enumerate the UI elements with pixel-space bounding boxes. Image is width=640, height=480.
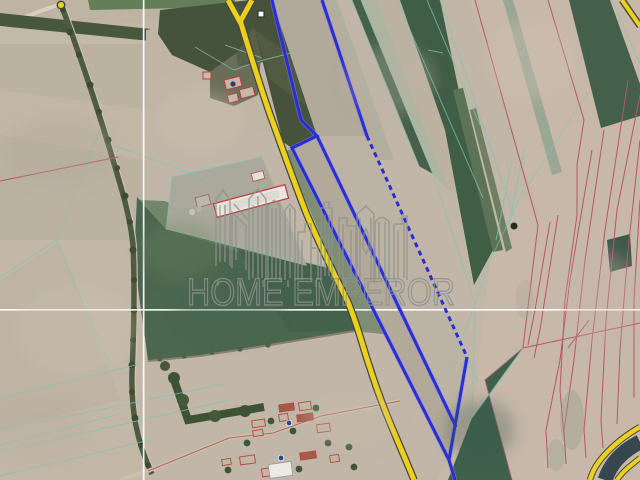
svg-text:HOME EMPEROR: HOME EMPEROR — [187, 272, 455, 314]
